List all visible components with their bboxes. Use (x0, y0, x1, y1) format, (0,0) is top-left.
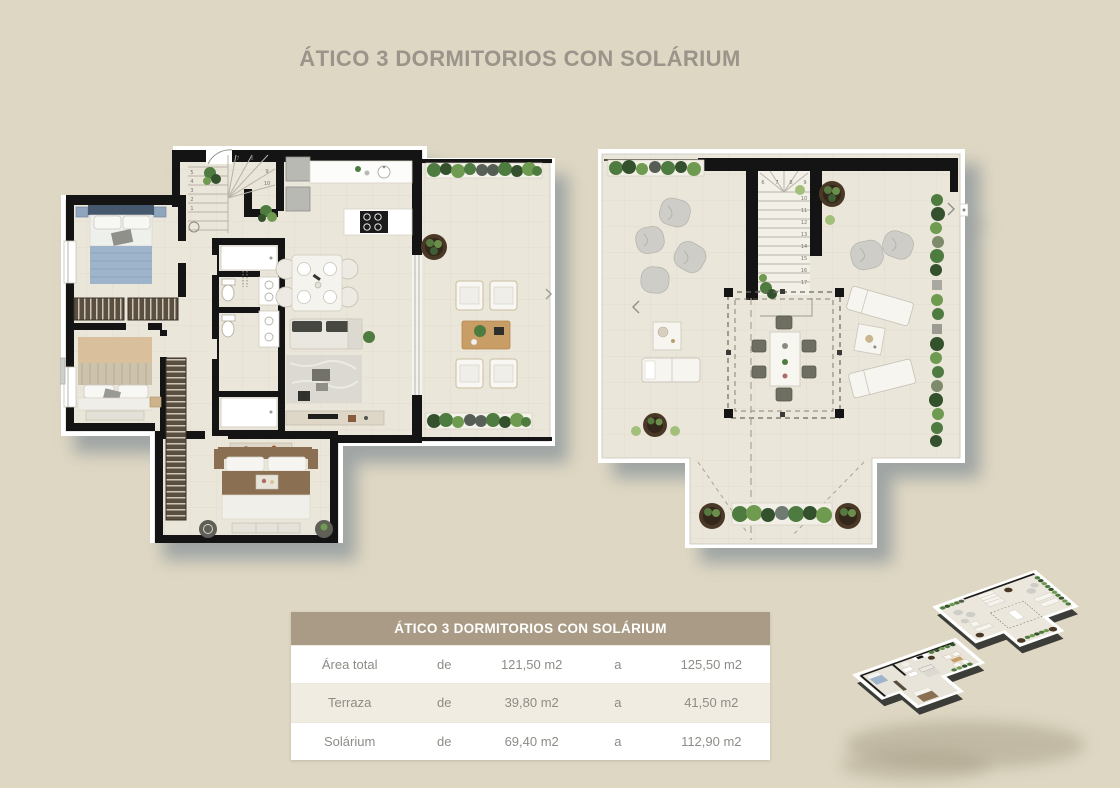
svg-text:9: 9 (265, 169, 268, 175)
areas-table-header: ÁTICO 3 DORMITORIOS CON SOLÁRIUM (291, 612, 770, 645)
pillow (94, 216, 121, 229)
pillow (123, 216, 150, 229)
wardrobe (74, 298, 124, 320)
chair (802, 340, 816, 352)
sink-counter (259, 311, 279, 347)
svg-text:5: 5 (190, 170, 193, 176)
plant (363, 331, 375, 343)
side-table (653, 322, 681, 350)
page-title: ÁTICO 3 DORMITORIOS CON SOLÁRIUM (0, 46, 1040, 72)
wardrobe (128, 298, 178, 320)
from-word: de (408, 657, 480, 672)
ac-unit (60, 358, 65, 384)
svg-text:13: 13 (801, 232, 807, 238)
svg-text:15: 15 (801, 256, 807, 262)
sliding-glass-door (412, 255, 422, 395)
svg-text:10: 10 (264, 181, 270, 187)
pillow (226, 457, 264, 471)
oven-column (286, 187, 310, 211)
toilet (222, 285, 234, 301)
wardrobe-tall (166, 358, 186, 520)
svg-text:17: 17 (801, 280, 807, 286)
row-label: Área total (291, 657, 408, 672)
from-word: de (408, 695, 480, 710)
shower (221, 398, 277, 427)
window (64, 367, 76, 407)
from-word: de (408, 734, 480, 749)
iso-apartment-slab (855, 639, 1000, 713)
svg-text:3: 3 (190, 188, 193, 194)
sink (265, 317, 273, 325)
pouf (298, 391, 310, 401)
to-value: 125,50 m2 (653, 657, 770, 672)
svg-text:8: 8 (789, 180, 792, 186)
headboard (78, 337, 152, 363)
to-word: a (583, 657, 652, 672)
to-value: 41,50 m2 (653, 695, 770, 710)
svg-text:8: 8 (250, 156, 253, 162)
shadow (840, 750, 990, 780)
table-row: Solárium de 69,40 m2 a 112,90 m2 (291, 722, 770, 760)
to-value: 112,90 m2 (653, 734, 770, 749)
svg-text:7: 7 (236, 156, 239, 162)
chair (752, 366, 766, 378)
isometric-3d-view (815, 545, 1120, 788)
from-value: 69,40 m2 (480, 734, 583, 749)
plate (298, 291, 311, 304)
kitchen-counter (310, 161, 412, 183)
coffee-table (312, 369, 330, 381)
sink (265, 333, 273, 341)
areas-table: ÁTICO 3 DORMITORIOS CON SOLÁRIUM Área to… (291, 612, 770, 760)
isometric-3d-svg (815, 545, 1120, 788)
fridge (286, 157, 310, 181)
plate (298, 263, 311, 276)
pillow (268, 457, 306, 471)
nightstand (76, 207, 88, 217)
side-table (199, 520, 217, 538)
tv (308, 414, 338, 419)
floor-plan-solarium-svg: 6789 1011121314151617 (598, 148, 968, 548)
duvet (222, 495, 310, 519)
chair (802, 366, 816, 378)
table-row: Terraza de 39,80 m2 a 41,50 m2 (291, 683, 770, 721)
chair (752, 340, 766, 352)
floor-plan-solarium: 6789 1011121314151617 (598, 148, 968, 548)
svg-text:4: 4 (190, 179, 193, 185)
chair (776, 388, 792, 401)
svg-text:11: 11 (801, 208, 807, 214)
svg-text:7: 7 (775, 180, 778, 186)
svg-text:16: 16 (801, 268, 807, 274)
svg-text:9: 9 (803, 180, 806, 186)
svg-text:14: 14 (801, 244, 807, 250)
from-value: 39,80 m2 (480, 695, 583, 710)
from-value: 121,50 m2 (480, 657, 583, 672)
side-table (150, 397, 161, 407)
chaise (348, 319, 362, 349)
blue-blanket (90, 246, 152, 284)
chair (776, 316, 792, 329)
nightstand (154, 207, 166, 217)
cooktop (360, 211, 388, 233)
row-label: Solárium (291, 734, 408, 749)
coffee-table (316, 383, 328, 391)
svg-text:6: 6 (761, 180, 764, 186)
svg-text:12: 12 (801, 220, 807, 226)
sink (265, 281, 273, 289)
plate (324, 291, 337, 304)
floor-plan-main-level-svg: 54321 78 910 (60, 143, 560, 543)
svg-text:2: 2 (190, 197, 193, 203)
svg-text:10: 10 (801, 196, 807, 202)
floor-plan-main-level: 54321 78 910 (60, 143, 560, 543)
plate (324, 263, 337, 276)
bench (232, 523, 300, 533)
window (64, 241, 76, 283)
svg-text:1: 1 (190, 206, 193, 212)
shower (221, 246, 277, 270)
row-label: Terraza (291, 695, 408, 710)
sink (265, 293, 273, 301)
to-word: a (583, 695, 652, 710)
bed-tray (256, 475, 278, 489)
headboard (88, 205, 154, 215)
bedroom-tan (78, 337, 161, 420)
table-row: Área total de 121,50 m2 a 125,50 m2 (291, 645, 770, 683)
toilet (222, 321, 234, 337)
bench (86, 411, 144, 420)
pillow (118, 385, 148, 398)
to-word: a (583, 734, 652, 749)
planter-top-left (608, 160, 704, 176)
